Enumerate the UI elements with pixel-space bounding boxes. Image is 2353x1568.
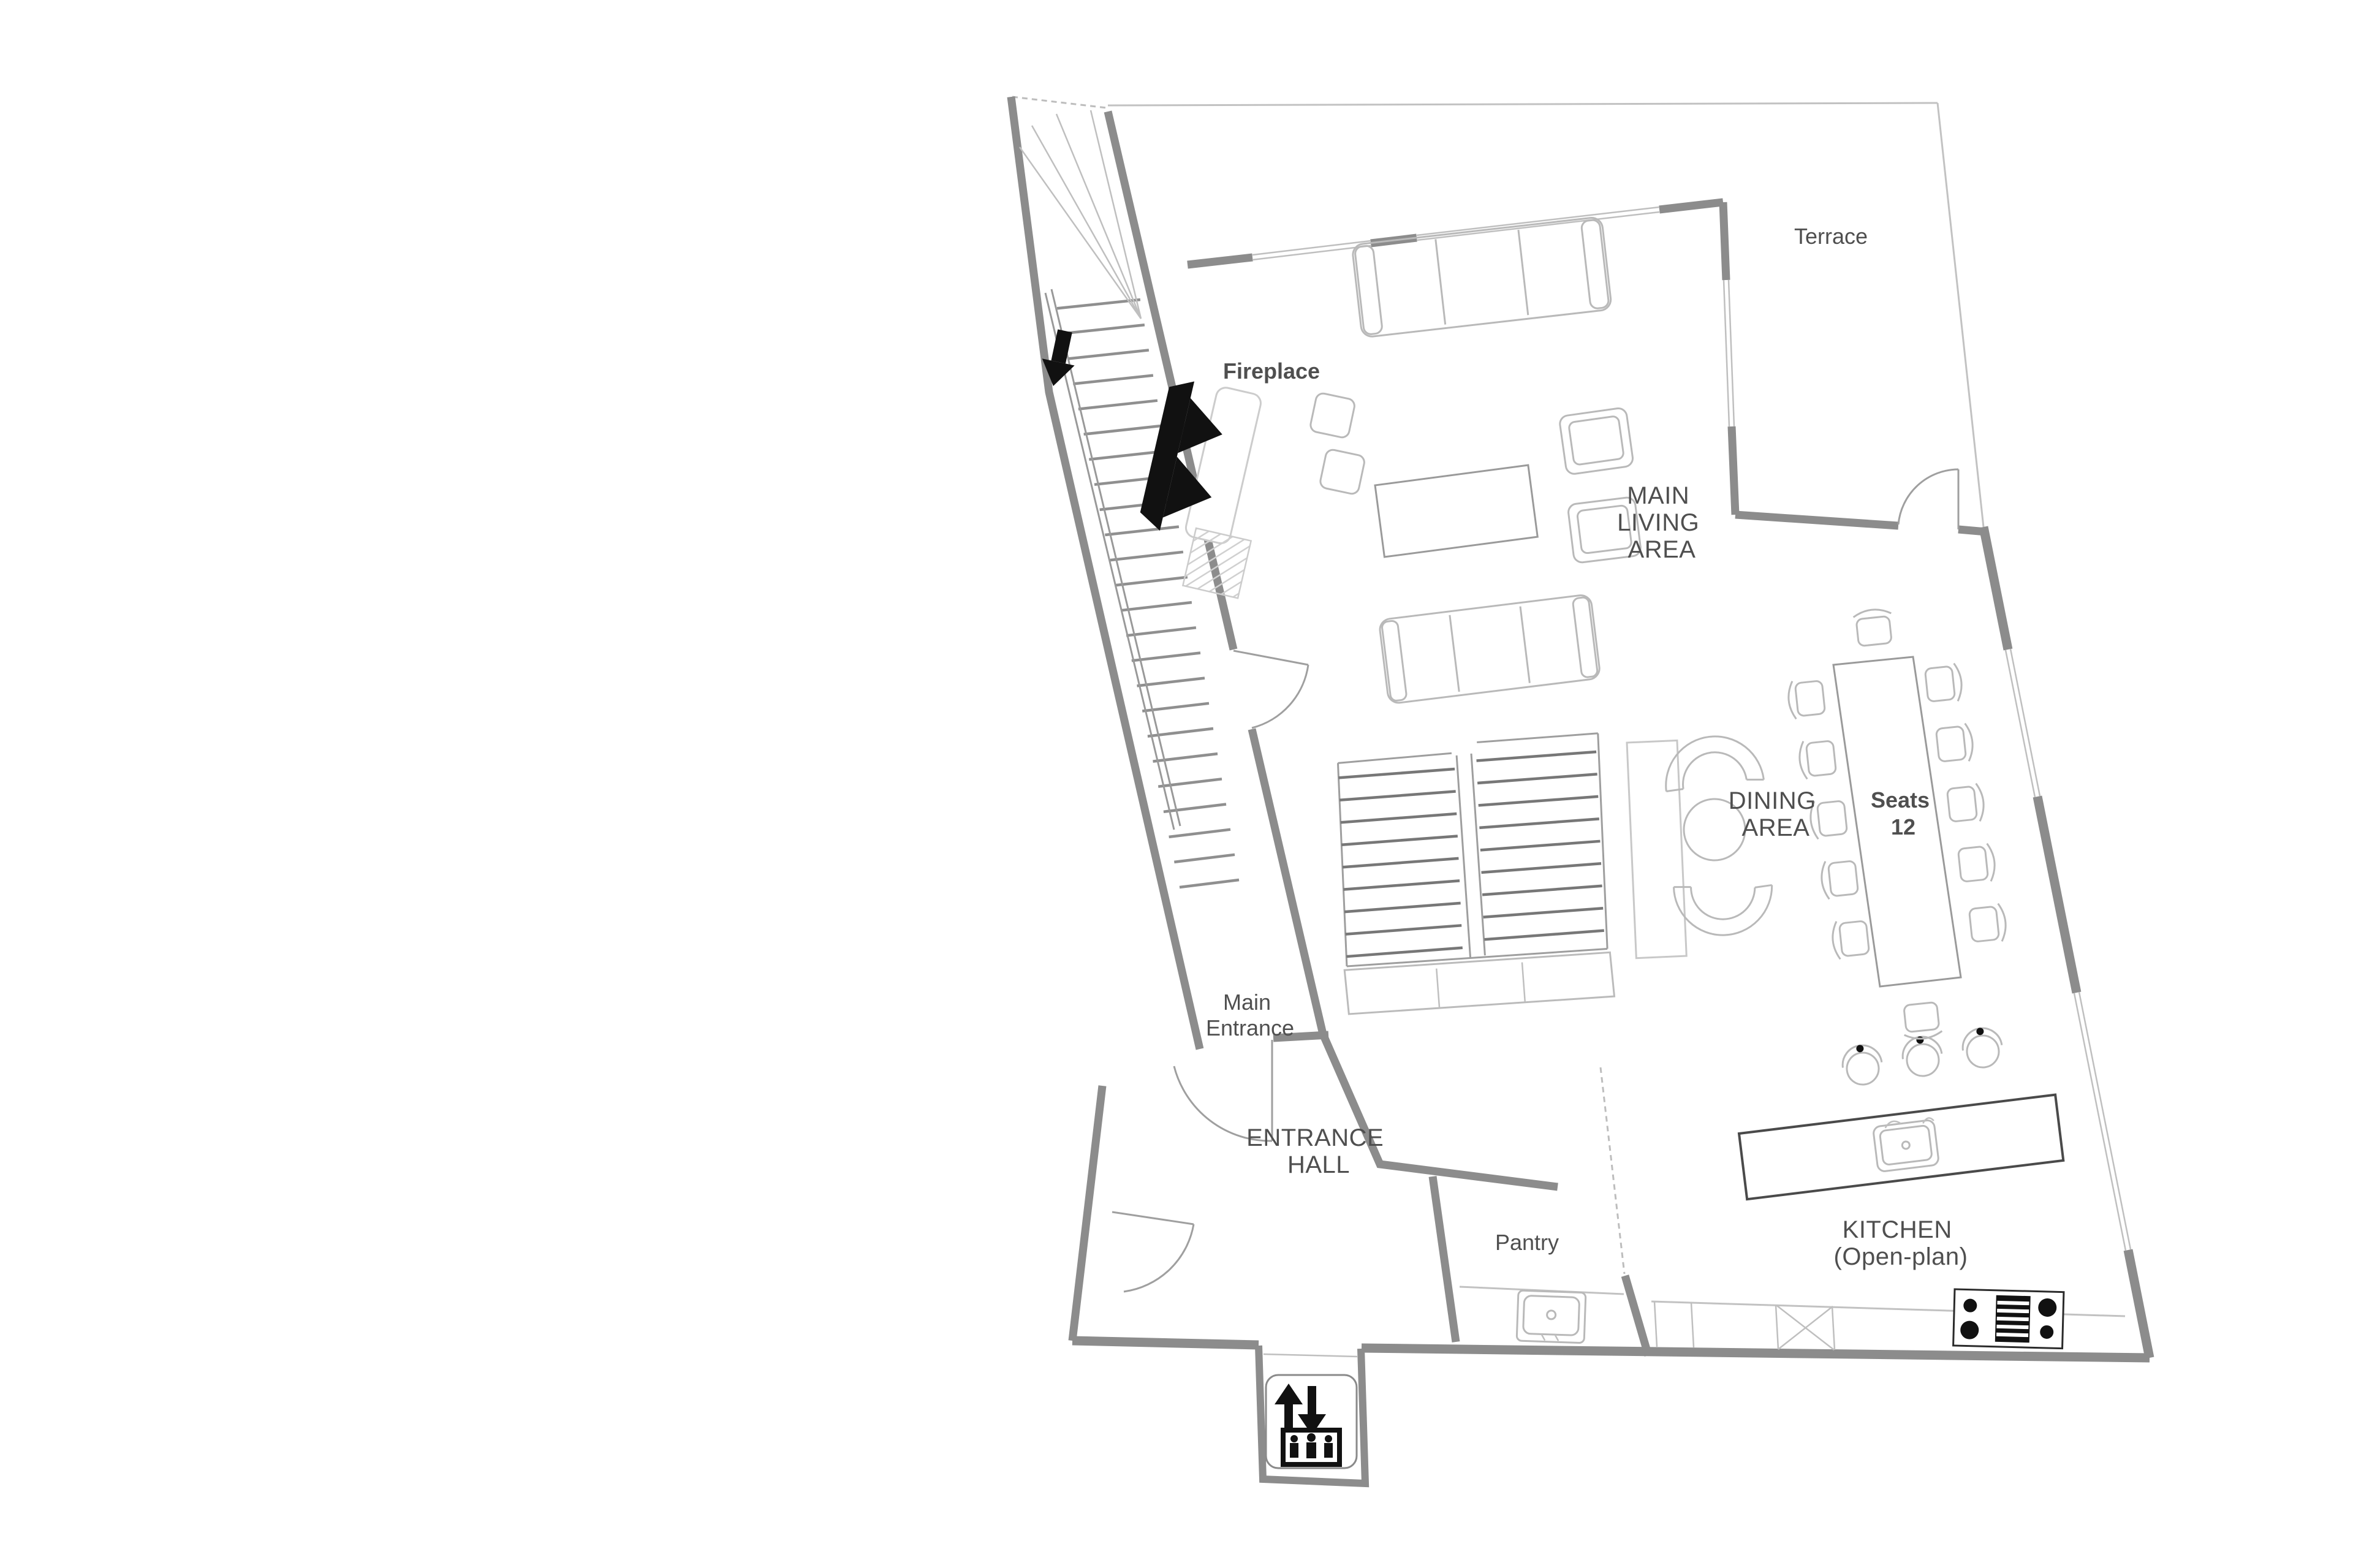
dining-area-label: DINING AREA bbox=[1729, 787, 1824, 841]
pantry-label: Pantry bbox=[1495, 1230, 1559, 1255]
kitchen-label: KITCHEN (Open-plan) bbox=[1834, 1216, 1968, 1270]
main-living-area-label: MAIN LIVING AREA bbox=[1617, 482, 1707, 563]
floor-plan-page: Terrace Fireplace MAIN LIVING AREA DININ… bbox=[0, 0, 2353, 1568]
chimney-hatch bbox=[1183, 528, 1251, 598]
terrace-label: Terrace bbox=[1794, 224, 1868, 249]
floor-plan-svg: Terrace Fireplace MAIN LIVING AREA DININ… bbox=[0, 0, 2353, 1568]
elevator-up-down-people-icon bbox=[1266, 1375, 1357, 1468]
elevator-people bbox=[1290, 1433, 1333, 1458]
cooktop bbox=[1953, 1289, 2064, 1349]
fireplace-label: Fireplace bbox=[1223, 358, 1320, 384]
